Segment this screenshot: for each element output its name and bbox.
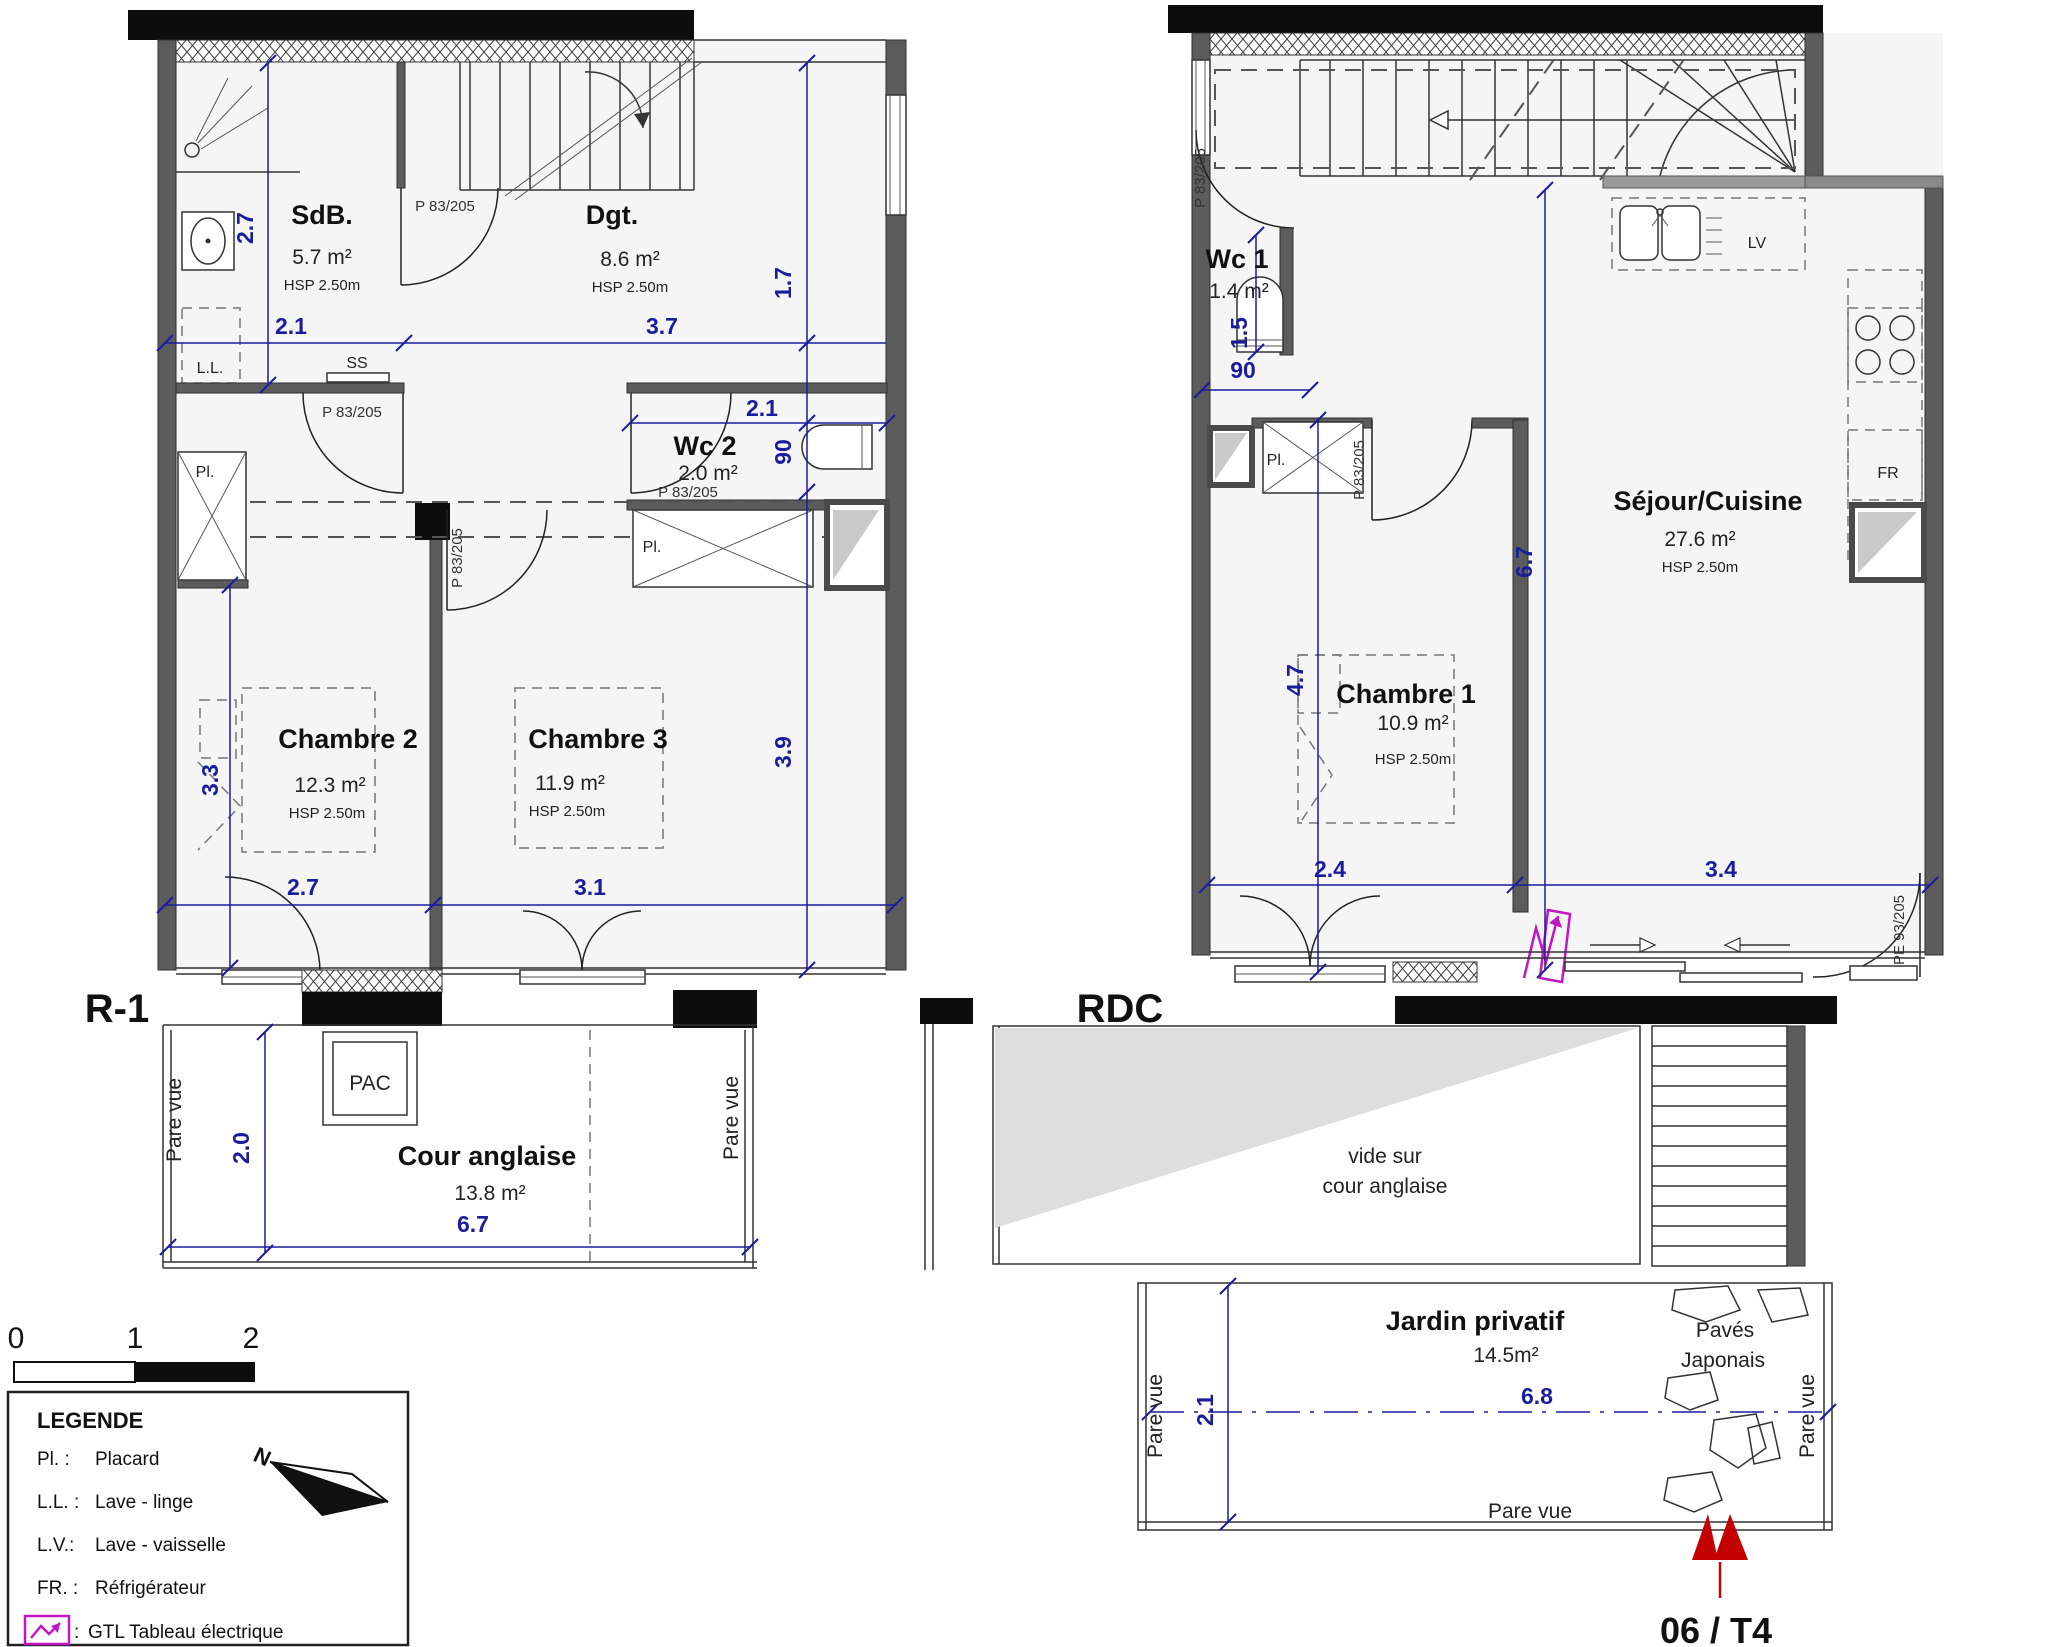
legend-label-refrigerateur: Réfrigérateur xyxy=(95,1578,207,1599)
rdc-top-hatch-wall xyxy=(1210,33,1808,55)
r1-dim-right-top: 1.7 xyxy=(770,267,796,299)
legend-abbr-gtl: : xyxy=(74,1622,79,1643)
r1-top-black-bar xyxy=(128,10,694,40)
rdc-pare-vue-left: Pare vue xyxy=(1144,1374,1167,1458)
rdc-door-c1-label: P 83/205 xyxy=(1351,440,1368,500)
rdc-wall-c1-right xyxy=(1513,420,1528,912)
unit-number: 06 / T4 xyxy=(1660,1610,1772,1647)
legend-abbr-placard: Pl. : xyxy=(37,1449,70,1470)
rdc-shaft xyxy=(1210,428,1252,485)
rdc-shaft-right xyxy=(1852,505,1924,580)
r1-cour-title: Cour anglaise xyxy=(398,1141,577,1171)
rdc-vide-section xyxy=(920,998,1640,1270)
legend-abbr-refrigerateur: FR. : xyxy=(37,1578,78,1599)
r1-door-wc2-label: P 83/205 xyxy=(658,484,718,501)
floorplan-canvas: SdB. 5.7 m² HSP 2.50m Dgt. 8.6 m² HSP 2.… xyxy=(0,0,2048,1647)
r1-wall-sdb-dgt xyxy=(397,62,405,188)
r1-wc2-area: 2.0 m² xyxy=(678,462,738,485)
scale-2: 2 xyxy=(243,1322,260,1355)
r1-cour-area: 13.8 m² xyxy=(454,1182,525,1205)
r1-sdb-hsp: HSP 2.50m xyxy=(284,277,360,294)
rdc-left-window xyxy=(1192,60,1210,155)
rdc-vide-line1: vide sur xyxy=(1348,1145,1422,1168)
scale-0: 0 xyxy=(8,1322,25,1355)
rdc-pare-vue-right: Pare vue xyxy=(1796,1374,1819,1458)
rdc-c1-area: 10.9 m² xyxy=(1377,712,1448,735)
r1-column xyxy=(415,503,450,540)
rdc-pl-label: Pl. xyxy=(1267,452,1286,469)
rdc-sejour-area: 27.6 m² xyxy=(1664,528,1735,551)
r1-c3-title: Chambre 3 xyxy=(528,724,668,754)
r1-ll-label: L.L. xyxy=(197,360,224,377)
r1-pl-c2-label: Pl. xyxy=(196,464,215,481)
r1-dim-wc2-w: 2.1 xyxy=(746,395,778,421)
r1-dim-c2-w: 2.7 xyxy=(287,874,319,900)
rdc-paves-line1: Pavés xyxy=(1696,1319,1754,1342)
r1-dim-c2-h: 3.3 xyxy=(197,764,223,796)
rdc-floor xyxy=(1210,33,1943,955)
r1-wc2-title: Wc 2 xyxy=(673,431,736,461)
r1-dim-sdb-h: 2.7 xyxy=(232,212,258,244)
r1-shaft xyxy=(827,502,887,588)
legend-abbr-lavevaisselle: L.V.: xyxy=(37,1535,74,1556)
r1-top-hatch-wall xyxy=(158,40,694,62)
floorplan-drawing: SdB. 5.7 m² HSP 2.50m Dgt. 8.6 m² HSP 2.… xyxy=(0,0,2048,1647)
rdc-sejour-hsp: HSP 2.50m xyxy=(1662,559,1738,576)
rdc-c1-title: Chambre 1 xyxy=(1336,679,1476,709)
rdc-wc1-area: 1.4 m² xyxy=(1209,280,1269,303)
rdc-sejour-title: Séjour/Cuisine xyxy=(1613,486,1802,516)
r1-dim-wc2-h: 90 xyxy=(770,439,796,465)
r1-dgt-area: 8.6 m² xyxy=(600,248,660,271)
rdc-dim-sejour-h: 6.7 xyxy=(1511,546,1537,578)
rdc-dim-wc1-h: 1.5 xyxy=(1226,317,1252,349)
rdc-dim-entry-w: 3.4 xyxy=(1705,856,1737,882)
r1-c2-title: Chambre 2 xyxy=(278,724,418,754)
r1-wall-bedrooms xyxy=(430,505,442,970)
rdc-exterior-stairs xyxy=(1652,1026,1805,1266)
r1-plan-label: R-1 xyxy=(85,987,149,1031)
rdc-wc1-title: Wc 1 xyxy=(1205,244,1268,274)
r1-toilet-icon xyxy=(802,425,872,469)
rdc-top-black-bar xyxy=(1168,5,1823,33)
rdc-dim-jardin-w: 6.8 xyxy=(1521,1383,1553,1409)
r1-dim-c3-w: 3.1 xyxy=(574,874,606,900)
scale-1: 1 xyxy=(127,1322,144,1355)
rdc-dim-wc1-w: 90 xyxy=(1230,357,1256,383)
legend-label-gtl: GTL Tableau électrique xyxy=(88,1622,283,1643)
r1-pare-vue-right: Pare vue xyxy=(720,1076,743,1160)
r1-c2-area: 12.3 m² xyxy=(294,774,365,797)
r1-door-sdb-label: P 83/205 xyxy=(415,198,475,215)
rdc-plan-label: RDC xyxy=(1077,987,1164,1031)
legend: LEGENDE Pl. : Placard L.L. : Lave - ling… xyxy=(8,1392,408,1645)
r1-ss-label: SS xyxy=(346,355,367,372)
rdc-jardin-area: 14.5m² xyxy=(1473,1344,1538,1367)
r1-dim-cour-h: 2.0 xyxy=(228,1132,254,1164)
rdc-pare-vue-bottom: Pare vue xyxy=(1488,1500,1572,1523)
r1-sdb-area: 5.7 m² xyxy=(292,246,352,269)
r1-dim-cour-w: 6.7 xyxy=(457,1211,489,1237)
rdc-c1-hsp: HSP 2.50m xyxy=(1375,751,1451,768)
r1-pac-label: PAC xyxy=(349,1072,391,1095)
r1-wall-wc2-top xyxy=(627,383,887,393)
legend-label-placard: Placard xyxy=(95,1449,159,1470)
r1-dgt-hsp: HSP 2.50m xyxy=(592,279,668,296)
r1-dim-c3-h: 3.9 xyxy=(770,736,796,768)
r1-pare-vue-left: Pare vue xyxy=(163,1078,186,1162)
r1-towel-rail xyxy=(327,373,389,382)
rdc-lv-label: LV xyxy=(1748,235,1767,252)
rdc-jardin-title: Jardin privatif xyxy=(1386,1306,1566,1336)
rdc-dim-c1-h: 4.7 xyxy=(1282,664,1308,696)
rdc-topstrip-right-wall xyxy=(1805,33,1823,183)
rdc-right-wall xyxy=(1925,183,1943,955)
plan-rdc: Wc 1 1.4 m² Séjour/Cuisine 27.6 m² HSP 2… xyxy=(920,5,1943,1647)
kitchen-sink-basin-2 xyxy=(1662,206,1700,260)
r1-c2-hsp: HSP 2.50m xyxy=(289,805,365,822)
rdc-paves-line2: Japonais xyxy=(1681,1349,1765,1372)
r1-left-wall xyxy=(158,40,176,970)
r1-wall-sdb-bottom xyxy=(176,383,404,393)
scale-bar: 0 1 2 xyxy=(8,1322,260,1382)
r1-door-c3-label: P 83/205 xyxy=(449,528,466,588)
r1-right-window xyxy=(886,95,906,215)
r1-sink-icon xyxy=(182,212,234,270)
rdc-dim-c1-w: 2.4 xyxy=(1314,856,1346,882)
kitchen-sink-basin-1 xyxy=(1620,206,1658,260)
r1-dim-dgt-w: 3.7 xyxy=(646,313,678,339)
r1-c3-area: 11.9 m² xyxy=(535,772,605,795)
r1-door-hall-label: P 83/205 xyxy=(322,404,382,421)
legend-label-lavelinge: Lave - linge xyxy=(95,1492,193,1513)
rdc-dim-jardin-h: 2.1 xyxy=(1192,1394,1218,1426)
rdc-vide-line2: cour anglaise xyxy=(1323,1175,1448,1198)
legend-abbr-lavelinge: L.L. : xyxy=(37,1492,79,1513)
rdc-door-entry-label: PE 93/205 xyxy=(1891,895,1908,965)
r1-c3-hsp: HSP 2.50m xyxy=(529,803,605,820)
rdc-fr-label: FR xyxy=(1877,465,1898,482)
r1-dgt-title: Dgt. xyxy=(586,200,638,230)
r1-pl-wc2-label: Pl. xyxy=(643,539,662,556)
plan-r1: SdB. 5.7 m² HSP 2.50m Dgt. 8.6 m² HSP 2.… xyxy=(85,10,906,1268)
legend-title: LEGENDE xyxy=(37,1408,143,1433)
rdc-door-wc1-label: P 83/205 xyxy=(1192,148,1209,208)
r1-sdb-title: SdB. xyxy=(291,200,353,230)
legend-label-lavevaisselle: Lave - vaisselle xyxy=(95,1535,226,1556)
r1-dim-sdb-w: 2.1 xyxy=(275,313,307,339)
